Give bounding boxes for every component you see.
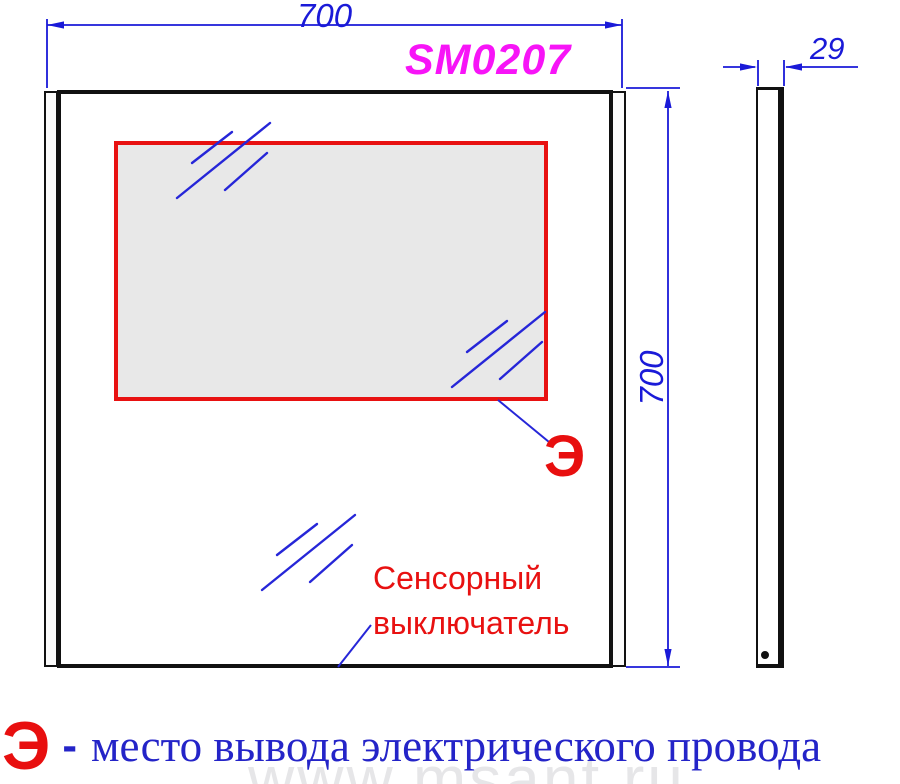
touch-switch-label-line2: выключатель bbox=[373, 601, 569, 646]
legend: Э - место вывода электрического провода bbox=[2, 712, 821, 780]
height-dimension-label-box: 700 bbox=[618, 348, 686, 408]
drawing-lines-svg bbox=[0, 0, 900, 784]
height-dimension-label: 700 bbox=[633, 350, 671, 405]
touch-switch-label-line1: Сенсорный bbox=[373, 556, 569, 601]
legend-description: место вывода электрического провода bbox=[91, 724, 821, 769]
width-dimension-label: 700 bbox=[297, 0, 352, 35]
electrical-outlet-symbol: Э bbox=[544, 428, 585, 486]
legend-separator: - bbox=[62, 724, 77, 768]
model-number-label: SM0207 bbox=[405, 36, 571, 85]
depth-dimension-label: 29 bbox=[810, 31, 844, 67]
touch-switch-label: Сенсорный выключатель bbox=[373, 556, 569, 647]
legend-electrical-symbol: Э bbox=[2, 712, 50, 780]
technical-drawing-canvas: www.msant.ru bbox=[0, 0, 900, 784]
glass-hatch-marks bbox=[177, 123, 545, 590]
